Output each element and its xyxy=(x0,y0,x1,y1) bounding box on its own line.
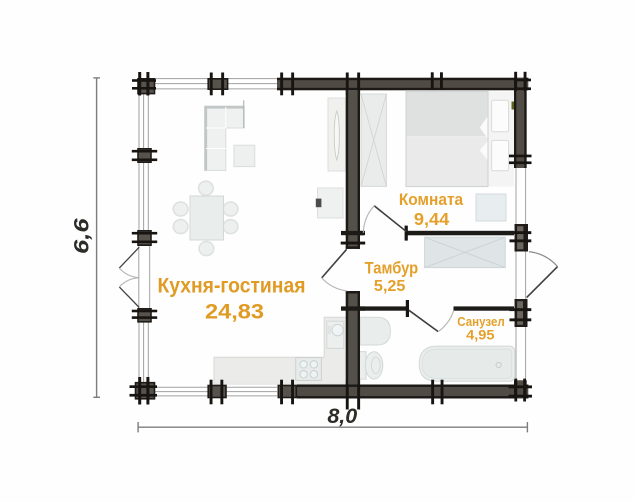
svg-text:Кухня-гостиная: Кухня-гостиная xyxy=(158,275,306,298)
svg-text:8,0: 8,0 xyxy=(327,404,357,428)
svg-text:9,44: 9,44 xyxy=(414,209,450,229)
svg-text:Тамбур: Тамбур xyxy=(365,259,419,277)
svg-text:4,95: 4,95 xyxy=(466,327,495,342)
svg-text:6,6: 6,6 xyxy=(70,217,94,254)
svg-text:5,25: 5,25 xyxy=(374,278,406,295)
svg-text:24,83: 24,83 xyxy=(205,300,264,324)
svg-text:Комната: Комната xyxy=(399,191,464,209)
